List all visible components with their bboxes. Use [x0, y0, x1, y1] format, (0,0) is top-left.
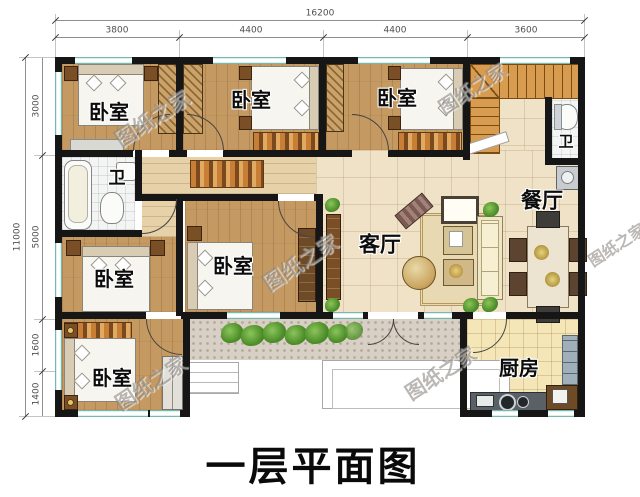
wall-bath-left-bottom	[55, 230, 142, 237]
wall-b2-b3	[319, 57, 326, 150]
floor-plan-canvas: 16200 3800 4400 4400 3600 11000 3000 500…	[0, 0, 640, 497]
nightstand	[64, 66, 78, 81]
dim-line-top-total	[55, 20, 585, 21]
nightstand-knob	[67, 327, 74, 334]
nightstand	[388, 66, 401, 80]
window	[55, 243, 62, 297]
room-label-bedroom-top-middle: 卧室	[231, 90, 271, 110]
window	[55, 330, 62, 390]
fridge-tall-cabinet	[562, 335, 578, 385]
toilet-tank	[554, 104, 562, 130]
dining-centerpiece	[545, 272, 560, 287]
bed-headboard	[78, 64, 144, 75]
wall-corridor-top	[169, 150, 187, 157]
room-label-bath-stair: 卫	[558, 135, 573, 150]
nightstand	[239, 66, 252, 80]
nightstand	[239, 116, 252, 130]
porch-steps-left	[188, 362, 239, 394]
dim-line-top-segments	[55, 37, 585, 38]
extension-line	[467, 30, 468, 57]
corridor-runner-rug	[190, 160, 264, 188]
stair-upper-flight	[498, 64, 580, 99]
nightstand	[388, 116, 401, 130]
extension-line	[323, 30, 324, 57]
wall-bath-stair-left	[545, 97, 552, 165]
window	[213, 57, 286, 64]
dining-table	[527, 226, 569, 308]
room-label-bedroom-top-right: 卧室	[377, 88, 417, 108]
bathtub-inner	[68, 165, 88, 223]
window	[150, 410, 180, 417]
window	[492, 410, 518, 417]
window	[358, 57, 430, 64]
toilet	[100, 192, 124, 224]
nightstand-knob	[67, 399, 74, 406]
wall-exterior-right	[578, 57, 585, 417]
dim-left-total: 11000	[14, 221, 23, 254]
dining-centerpiece	[534, 245, 549, 260]
watermark: 图纸之家	[583, 217, 640, 272]
dim-top-seg-4: 3600	[513, 27, 540, 36]
window	[548, 410, 574, 417]
dining-chair	[536, 211, 560, 228]
sofa-cushions	[481, 220, 499, 296]
dim-left-seg-4: 1400	[33, 381, 42, 408]
bed-headboard	[64, 338, 75, 402]
extension-line	[34, 155, 55, 156]
table-decor	[449, 264, 463, 278]
room-label-dining: 餐厅	[521, 191, 563, 212]
extension-line	[34, 371, 55, 372]
room-label-bath-left: 卫	[109, 171, 126, 188]
dim-top-seg-2: 4400	[238, 27, 265, 36]
rug	[253, 132, 319, 151]
wall-corridor-top	[55, 150, 133, 157]
dim-left-seg-2: 5000	[33, 224, 42, 251]
plan-title: 一层平面图	[206, 434, 421, 492]
tv-fireplace	[441, 196, 479, 224]
coffee-table-tray	[449, 231, 463, 247]
stove-burner	[517, 396, 529, 408]
wall-corridor-top	[388, 150, 467, 157]
wardrobe	[326, 64, 344, 132]
bed-headboard	[82, 246, 150, 257]
bed-headboard	[187, 242, 198, 310]
nightstand	[150, 240, 165, 256]
window	[75, 57, 132, 64]
kitchen-sink	[476, 395, 494, 407]
window	[333, 312, 363, 319]
dining-chair	[509, 272, 527, 296]
window	[500, 57, 570, 64]
room-label-kitchen: 厨房	[499, 358, 539, 378]
window	[55, 72, 62, 135]
dim-left-seg-3: 1600	[33, 332, 42, 359]
window	[227, 312, 280, 319]
extension-line	[179, 30, 180, 57]
wall-b4-b5	[176, 194, 183, 316]
bed-headboard	[309, 66, 319, 130]
stove-burner	[499, 394, 516, 411]
window	[424, 312, 452, 319]
room-label-bedroom-mid-center: 卧室	[213, 256, 253, 276]
wall-corridor-top	[223, 150, 352, 157]
dim-top-total: 16200	[304, 10, 337, 19]
dim-top-seg-3: 4400	[382, 27, 409, 36]
wall-kitchen-top	[506, 312, 578, 319]
extension-line	[34, 319, 55, 320]
wall-bath-left-right	[135, 150, 142, 199]
nightstand	[66, 240, 81, 256]
dim-line-left-segments	[42, 57, 43, 417]
dim-top-seg-1: 3800	[104, 27, 131, 36]
rug	[398, 132, 462, 151]
dining-chair	[509, 238, 527, 262]
round-side-table	[402, 256, 436, 290]
room-label-bedroom-mid-left: 卧室	[94, 269, 134, 289]
room-label-living: 客厅	[359, 235, 401, 256]
washing-machine-door	[561, 171, 574, 184]
nightstand	[144, 66, 158, 81]
wall-mid-bottom	[55, 312, 146, 319]
dim-left-seg-1: 3000	[33, 93, 42, 120]
kitchen-appliance	[552, 389, 568, 404]
window	[78, 410, 148, 417]
wall-bath-stair-bottom	[545, 158, 578, 165]
nightstand	[187, 226, 202, 241]
dim-line-left-total	[25, 57, 26, 417]
